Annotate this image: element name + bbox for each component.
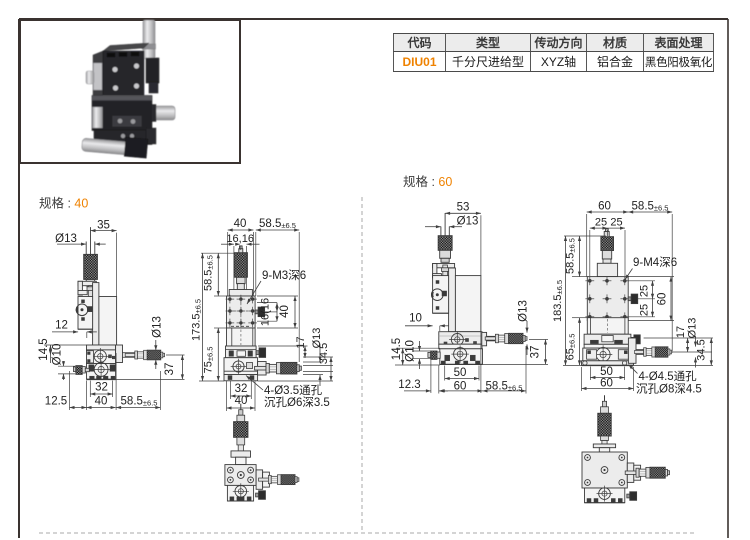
svg-text:Ø10: Ø10 bbox=[52, 344, 64, 366]
svg-text:16(16: 16(16 bbox=[260, 298, 272, 326]
svg-text:Ø13: Ø13 bbox=[55, 233, 77, 245]
svg-text:12.3: 12.3 bbox=[398, 379, 420, 391]
svg-text:9-M3深6: 9-M3深6 bbox=[262, 268, 306, 282]
svg-text:40: 40 bbox=[95, 396, 108, 408]
svg-text:17: 17 bbox=[675, 326, 687, 338]
svg-text:173.5±6.5: 173.5±6.5 bbox=[191, 299, 203, 341]
svg-text:40: 40 bbox=[279, 305, 291, 318]
svg-text:60: 60 bbox=[657, 293, 669, 306]
svg-text:35: 35 bbox=[97, 220, 110, 232]
svg-text:规格 : 60: 规格 : 60 bbox=[403, 174, 452, 189]
svg-text:34.5: 34.5 bbox=[696, 339, 708, 360]
svg-text:12.5: 12.5 bbox=[45, 396, 67, 408]
svg-text:32: 32 bbox=[235, 383, 248, 395]
svg-text:25: 25 bbox=[610, 217, 622, 229]
svg-text:65±6.5: 65±6.5 bbox=[565, 334, 577, 361]
svg-text:沉孔Ø8深4.5: 沉孔Ø8深4.5 bbox=[636, 382, 702, 396]
svg-text:50: 50 bbox=[600, 366, 613, 378]
svg-text:75±6.5: 75±6.5 bbox=[203, 347, 215, 374]
svg-text:10: 10 bbox=[409, 313, 422, 325]
svg-text:14.5: 14.5 bbox=[38, 338, 50, 360]
svg-text:25: 25 bbox=[595, 217, 607, 229]
svg-text:40: 40 bbox=[234, 218, 247, 230]
svg-text:4-Ø4.5通孔: 4-Ø4.5通孔 bbox=[639, 370, 698, 383]
svg-text:183.5±6.5: 183.5±6.5 bbox=[552, 280, 564, 322]
svg-text:Ø13: Ø13 bbox=[151, 316, 163, 338]
svg-text:34.5: 34.5 bbox=[318, 343, 330, 364]
svg-text:规格 : 40: 规格 : 40 bbox=[39, 196, 88, 211]
svg-text:58.5±6.5: 58.5±6.5 bbox=[203, 255, 215, 291]
svg-text:32: 32 bbox=[95, 382, 108, 394]
svg-text:58.5±6.5: 58.5±6.5 bbox=[632, 201, 669, 213]
svg-text:Ø13: Ø13 bbox=[687, 318, 699, 339]
svg-text:53: 53 bbox=[457, 202, 470, 214]
svg-text:14.5: 14.5 bbox=[391, 338, 403, 360]
svg-text:50: 50 bbox=[454, 367, 467, 379]
svg-text:37: 37 bbox=[530, 346, 542, 359]
svg-text:Ø13: Ø13 bbox=[518, 300, 530, 322]
svg-text:Ø13: Ø13 bbox=[457, 216, 479, 228]
svg-text:12: 12 bbox=[55, 320, 68, 332]
svg-text:58.5±6.5: 58.5±6.5 bbox=[121, 396, 158, 408]
svg-text:58.5±6.5: 58.5±6.5 bbox=[565, 238, 577, 274]
svg-text:60: 60 bbox=[598, 201, 611, 213]
svg-text:4-Ø3.5通孔: 4-Ø3.5通孔 bbox=[264, 384, 323, 397]
svg-text:58.5±6.5: 58.5±6.5 bbox=[259, 218, 296, 230]
svg-text:25: 25 bbox=[639, 285, 651, 297]
svg-text:37: 37 bbox=[164, 363, 176, 376]
svg-text:60: 60 bbox=[600, 378, 613, 390]
svg-text:9-M4深6: 9-M4深6 bbox=[633, 255, 677, 269]
svg-text:25: 25 bbox=[639, 304, 651, 316]
svg-text:沉孔Ø6深3.5: 沉孔Ø6深3.5 bbox=[264, 395, 330, 409]
